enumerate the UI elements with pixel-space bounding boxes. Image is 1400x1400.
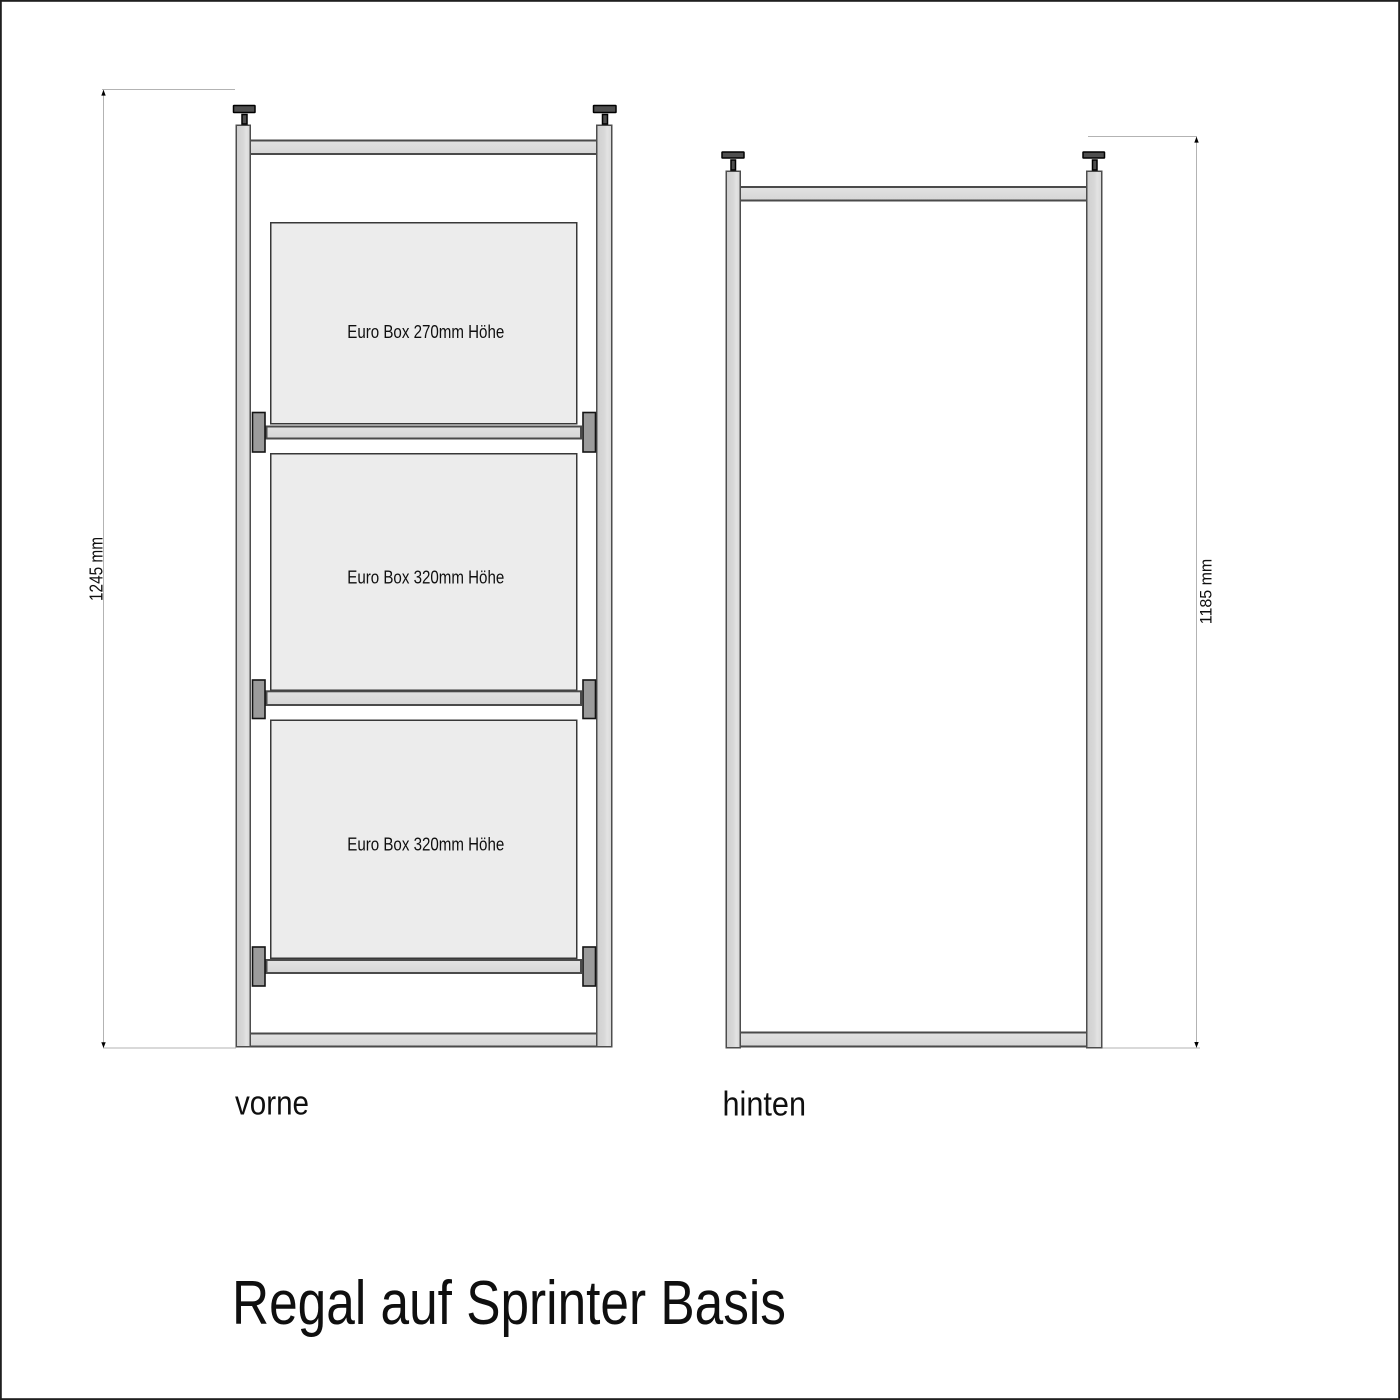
svg-text:1245 mm: 1245 mm	[87, 537, 107, 601]
svg-text:1185 mm: 1185 mm	[1197, 559, 1216, 625]
svg-text:hinten: hinten	[723, 1086, 807, 1124]
svg-text:Euro Box 320mm Höhe: Euro Box 320mm Höhe	[347, 568, 504, 588]
svg-text:Euro Box 320mm Höhe: Euro Box 320mm Höhe	[347, 835, 504, 855]
svg-text:Regal auf Sprinter Basis: Regal auf Sprinter Basis	[232, 1269, 786, 1338]
svg-text:Euro Box 270mm Höhe: Euro Box 270mm Höhe	[347, 322, 504, 342]
svg-text:vorne: vorne	[235, 1085, 309, 1123]
